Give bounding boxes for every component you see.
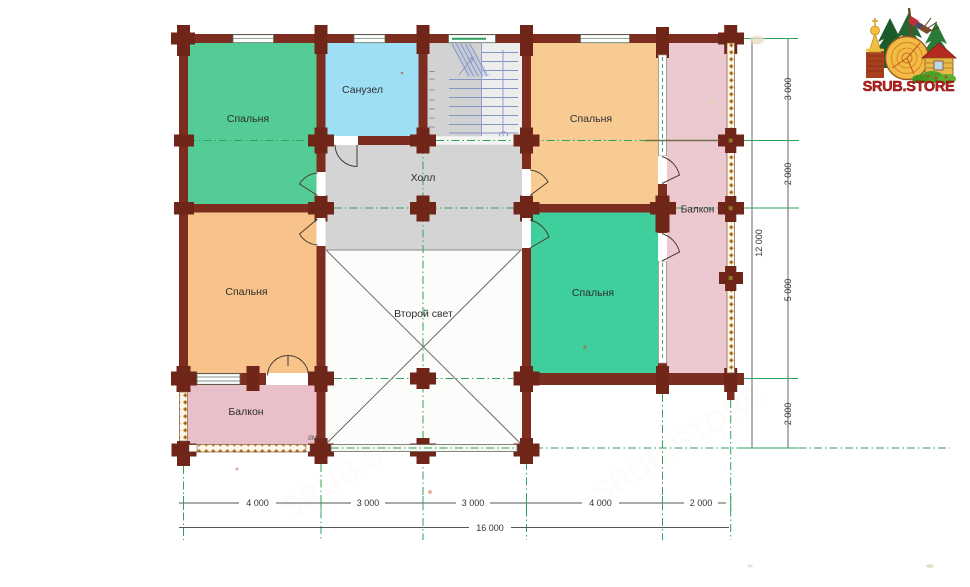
svg-text:Балкон: Балкон (681, 205, 715, 216)
svg-text:5 000: 5 000 (783, 279, 793, 302)
svg-text:Спальня: Спальня (570, 113, 612, 125)
svg-text:Второй свет: Второй свет (394, 308, 453, 320)
svg-text:Спальня: Спальня (572, 287, 614, 299)
svg-text:Спальня: Спальня (227, 113, 269, 125)
svg-text:2 000: 2 000 (690, 498, 713, 508)
svg-text:3 000: 3 000 (357, 498, 380, 508)
svg-text:12 000: 12 000 (754, 229, 764, 257)
svg-text:Спальня: Спальня (225, 286, 267, 298)
svg-text:Холл: Холл (411, 172, 436, 184)
svg-text:2 000: 2 000 (783, 403, 793, 426)
svg-text:ƧM: ƧM (308, 436, 317, 442)
svg-text:SRUB.STORE: SRUB.STORE (863, 79, 955, 95)
svg-text:16 000: 16 000 (476, 523, 504, 533)
svg-text:2 000: 2 000 (783, 163, 793, 186)
svg-text:Балкон: Балкон (228, 406, 263, 418)
svg-text:4 000: 4 000 (246, 498, 269, 508)
svg-text:Санузел: Санузел (342, 84, 383, 96)
svg-text:4 000: 4 000 (589, 498, 612, 508)
svg-text:3 000: 3 000 (783, 78, 793, 101)
svg-text:3 000: 3 000 (462, 498, 485, 508)
